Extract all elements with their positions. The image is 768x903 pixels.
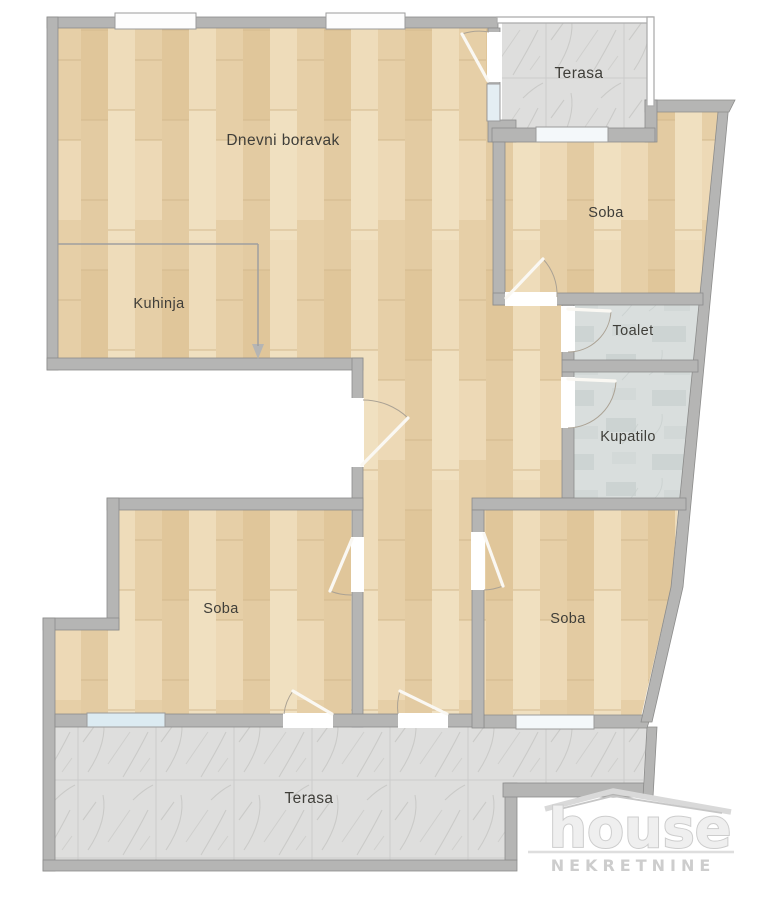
window-terasa-soba bbox=[536, 127, 608, 142]
railing-terasa-right bbox=[647, 17, 654, 106]
wall-kitchen-bottom bbox=[47, 358, 363, 370]
opening-soba-tr-door bbox=[505, 292, 557, 306]
wall-hall-bottom bbox=[472, 498, 686, 510]
label-kupatilo: Kupatilo bbox=[600, 429, 656, 445]
opening-soba-br-door bbox=[471, 532, 485, 590]
wall-soba-tr-top bbox=[645, 100, 735, 112]
label-toalet: Toalet bbox=[612, 323, 653, 339]
wall-soba-bl-left bbox=[107, 498, 119, 630]
label-dnevni-boravak: Dnevni boravak bbox=[226, 132, 339, 150]
floor-plan-drawing: house NEKRETNINE bbox=[0, 0, 768, 903]
label-soba-bottom-right: Soba bbox=[550, 611, 585, 627]
logo-brand-text: house bbox=[549, 797, 732, 860]
opening-kupatilo-door bbox=[561, 377, 575, 428]
label-soba-bottom-left: Soba bbox=[203, 601, 238, 617]
wall-left-upper bbox=[47, 17, 58, 370]
wall-bottom-outer bbox=[43, 860, 517, 871]
window-soba-br bbox=[516, 715, 594, 729]
opening-terasa-bottom-door-left bbox=[283, 713, 333, 728]
leaf-kupatilo-door bbox=[568, 379, 615, 381]
opening-toalet-door bbox=[561, 306, 575, 352]
agency-logo: house NEKRETNINE bbox=[528, 791, 734, 875]
window-top-2 bbox=[326, 13, 405, 29]
logo-tagline-text: NEKRETNINE bbox=[551, 856, 716, 875]
railing-terasa-top bbox=[497, 17, 653, 23]
wall-soba-tr-left bbox=[493, 142, 505, 305]
wall-left-lower bbox=[43, 618, 55, 871]
wall-soba-bl-top bbox=[107, 498, 363, 510]
opening-terasa-top-door bbox=[487, 32, 501, 82]
floor-plan-page: house NEKRETNINE Dnevni boravak Kuhinja … bbox=[0, 0, 768, 903]
leaf-toalet-door bbox=[568, 309, 610, 311]
label-soba-top-right: Soba bbox=[588, 205, 623, 221]
window-livingroom-terrace bbox=[487, 84, 500, 121]
opening-soba-bl-door bbox=[351, 537, 364, 592]
opening-entrance bbox=[351, 398, 364, 467]
label-terasa-bottom: Terasa bbox=[285, 790, 334, 808]
window-soba-bl bbox=[87, 713, 165, 727]
window-top-1 bbox=[115, 13, 196, 29]
label-kuhinja: Kuhinja bbox=[133, 296, 184, 312]
label-terasa-top: Terasa bbox=[555, 65, 604, 83]
wall-toalet-kupatilo-divider bbox=[562, 360, 698, 372]
opening-terasa-bottom-door-hall bbox=[398, 713, 448, 728]
